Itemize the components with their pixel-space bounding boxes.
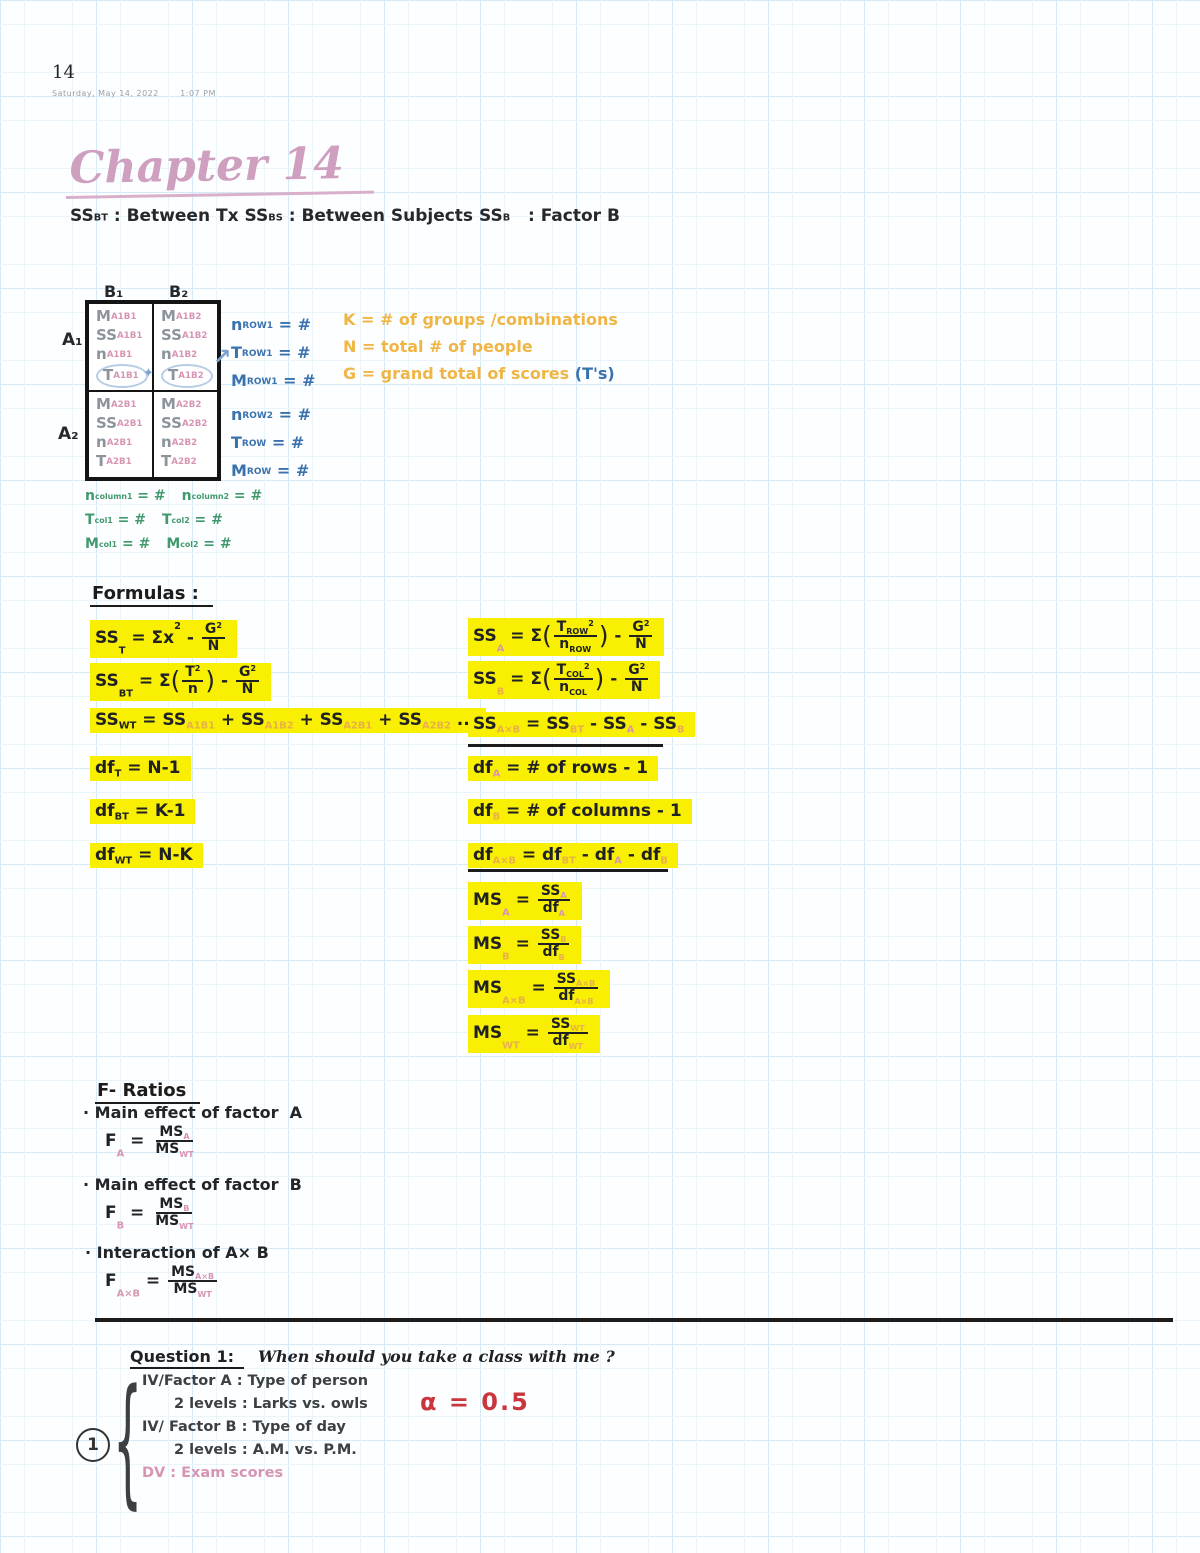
row-note: MROW1 = # — [231, 367, 316, 395]
cell-entry: TA2B2 — [161, 452, 215, 471]
date-line: Saturday, May 14, 2022 1:07 PM — [52, 89, 216, 98]
factor-table: MA1B1 SSA1B1 nA1B1 TA1B1 MA1B2 SSA1B2 nA… — [85, 300, 221, 481]
cell-entry: MA2B1 — [96, 395, 150, 414]
cell-entry: TA2B1 — [96, 452, 150, 471]
question-line-dv: DV : Exam scores — [142, 1462, 368, 1485]
col-note: Tcol2 = # — [162, 508, 223, 532]
date-text: Saturday, May 14, 2022 — [52, 89, 159, 98]
f-ratio-label-axb: · Interaction of A× B — [85, 1243, 269, 1262]
page-number: 14 — [52, 62, 75, 83]
formula-df-b: dfB = # of columns - 1 — [468, 799, 692, 824]
row-note: nROW1 = # — [231, 311, 316, 339]
formula-ss-total: SST = Σx2 - G2N — [90, 620, 237, 658]
ss-definition-line: SSBT : Between Tx — [70, 203, 239, 230]
cell-entry: nA1B2 — [161, 345, 215, 364]
time-text: 1:07 PM — [180, 89, 216, 98]
formulas-heading: Formulas : — [90, 583, 213, 607]
formula-ms-a: MSA = SSAdfA — [468, 882, 582, 920]
row-annotations-group2: nROW2 = # TROW = # MROW = # — [231, 401, 311, 485]
formula-df-total: dfT = N-1 — [90, 756, 191, 781]
row-note: nROW2 = # — [231, 401, 311, 429]
ellipse-connector-icon: ✦ — [143, 366, 154, 381]
question-header: Question 1: When should you take a class… — [130, 1347, 615, 1369]
ss-definitions: SSBT : Between Tx SSBS : Between Subject… — [70, 203, 620, 230]
legend-line: N = total # of people — [343, 333, 618, 360]
formula-ms-b: MSB = SSBdfB — [468, 926, 581, 964]
row-note: TROW = # — [231, 429, 311, 457]
formula-df-a: dfA = # of rows - 1 — [468, 756, 658, 781]
question-details: IV/Factor A : Type of person 2 levels : … — [142, 1370, 368, 1485]
row-header-a1: A₁ — [62, 330, 83, 350]
question-line: IV/ Factor B : Type of day — [142, 1416, 368, 1439]
formula-ss-wt: SSWT = SSA1B1 + SSA1B2 + SSA2B1 + SSA2B2… — [90, 708, 486, 733]
legend-line: G = grand total of scores (T's) — [343, 360, 618, 387]
notebook-page: 14 Saturday, May 14, 2022 1:07 PM Chapte… — [0, 0, 1200, 1553]
table-cell-a1b2: MA1B2 SSA1B2 nA1B2 TA1B2 — [153, 303, 218, 391]
cell-entry: MA2B2 — [161, 395, 215, 414]
formula-df-bt: dfBT = K-1 — [90, 799, 195, 824]
question-line: 2 levels : A.M. vs. P.M. — [174, 1439, 368, 1462]
row-note: MROW = # — [231, 457, 311, 485]
ss-definition-line: SSB : Factor B — [479, 203, 620, 230]
legend-line: K = # of groups /combinations — [343, 306, 618, 333]
cell-entry: SSA2B1 — [96, 414, 150, 433]
alpha-level: α = 0.5 — [420, 1388, 530, 1416]
question-number-badge: 1 — [76, 1428, 110, 1462]
formula-ss-axb: SSA×B = SSBT - SSA - SSB — [468, 712, 695, 737]
chapter-title: Chapter 14 — [65, 138, 374, 199]
f-ratio-label-b: · Main effect of factor B — [83, 1175, 302, 1194]
question-line: 2 levels : Larks vs. owls — [174, 1393, 368, 1416]
f-ratio-formula-b: FB = MSBMSWT — [105, 1197, 199, 1230]
f-ratios-heading: F- Ratios — [95, 1080, 200, 1104]
curly-brace: { — [113, 1370, 142, 1510]
f-ratio-formula-axb: FA×B = MSA×BMSWT — [105, 1265, 219, 1298]
col-note: ncolumn2 = # — [182, 484, 263, 508]
divider-under-df-axb — [468, 869, 668, 872]
cell-entry: nA2B2 — [161, 433, 215, 452]
row-annotations-group1: nROW1 = # TROW1 = # MROW1 = # — [231, 311, 316, 395]
col-note: ncolumn1 = # — [85, 484, 166, 508]
col-header-b1: B₁ — [104, 282, 123, 301]
cell-entry: nA1B1 — [96, 345, 150, 364]
symbol-legend: K = # of groups /combinations N = total … — [343, 306, 618, 387]
formula-ms-wt: MSWT = SSWTdfWT — [468, 1015, 600, 1053]
col-note: Mcol2 = # — [166, 532, 231, 556]
formula-df-wt: dfWT = N-K — [90, 843, 203, 868]
formula-df-axb: dfA×B = dfBT - dfA - dfB — [468, 843, 678, 868]
formula-ss-b: SSB = Σ(TCOL2nCOL) - G2N — [468, 661, 660, 699]
circled-total-t-a1b1: TA1B1 — [96, 364, 148, 388]
row-header-a2: A₂ — [58, 424, 79, 444]
formula-ss-bt: SSBT = Σ(T2n) - G2N — [90, 663, 271, 701]
cell-entry: SSA1B2 — [161, 326, 215, 345]
cell-entry: SSA1B1 — [96, 326, 150, 345]
divider-under-ss-axb — [468, 744, 663, 747]
annotation-arrow-icon: ↗ — [213, 345, 231, 370]
f-ratio-label-a: · Main effect of factor A — [83, 1103, 302, 1122]
formula-ms-axb: MSA×B = SSA×BdfA×B — [468, 970, 610, 1008]
col-note: Tcol1 = # — [85, 508, 146, 532]
cell-entry: MA1B1 — [96, 307, 150, 326]
cell-entry: SSA2B2 — [161, 414, 215, 433]
table-cell-a2b2: MA2B2 SSA2B2 nA2B2 TA2B2 — [153, 391, 218, 478]
ss-definition-line: SSBS : Between Subjects — [244, 203, 473, 230]
legend-tail: (T's) — [575, 364, 615, 383]
formula-ss-a: SSA = Σ(TROW2nROW) - G2N — [468, 618, 664, 656]
row-note: TROW1 = # — [231, 339, 316, 367]
col-note: Mcol1 = # — [85, 532, 150, 556]
f-ratio-formula-a: FA = MSAMSWT — [105, 1125, 199, 1158]
cell-entry: MA1B2 — [161, 307, 215, 326]
section-divider-line — [95, 1318, 1173, 1322]
circled-total-t-a1b2: TA1B2 — [161, 364, 213, 388]
question-heading: Question 1: — [130, 1347, 244, 1369]
table-cell-a2b1: MA2B1 SSA2B1 nA2B1 TA2B1 — [88, 391, 153, 478]
question-line: IV/Factor A : Type of person — [142, 1370, 368, 1393]
question-text: When should you take a class with me ? — [258, 1347, 615, 1366]
col-header-b2: B₂ — [169, 282, 188, 301]
column-annotations: ncolumn1 = # ncolumn2 = # Tcol1 = # Tcol… — [85, 484, 262, 556]
cell-entry: nA2B1 — [96, 433, 150, 452]
